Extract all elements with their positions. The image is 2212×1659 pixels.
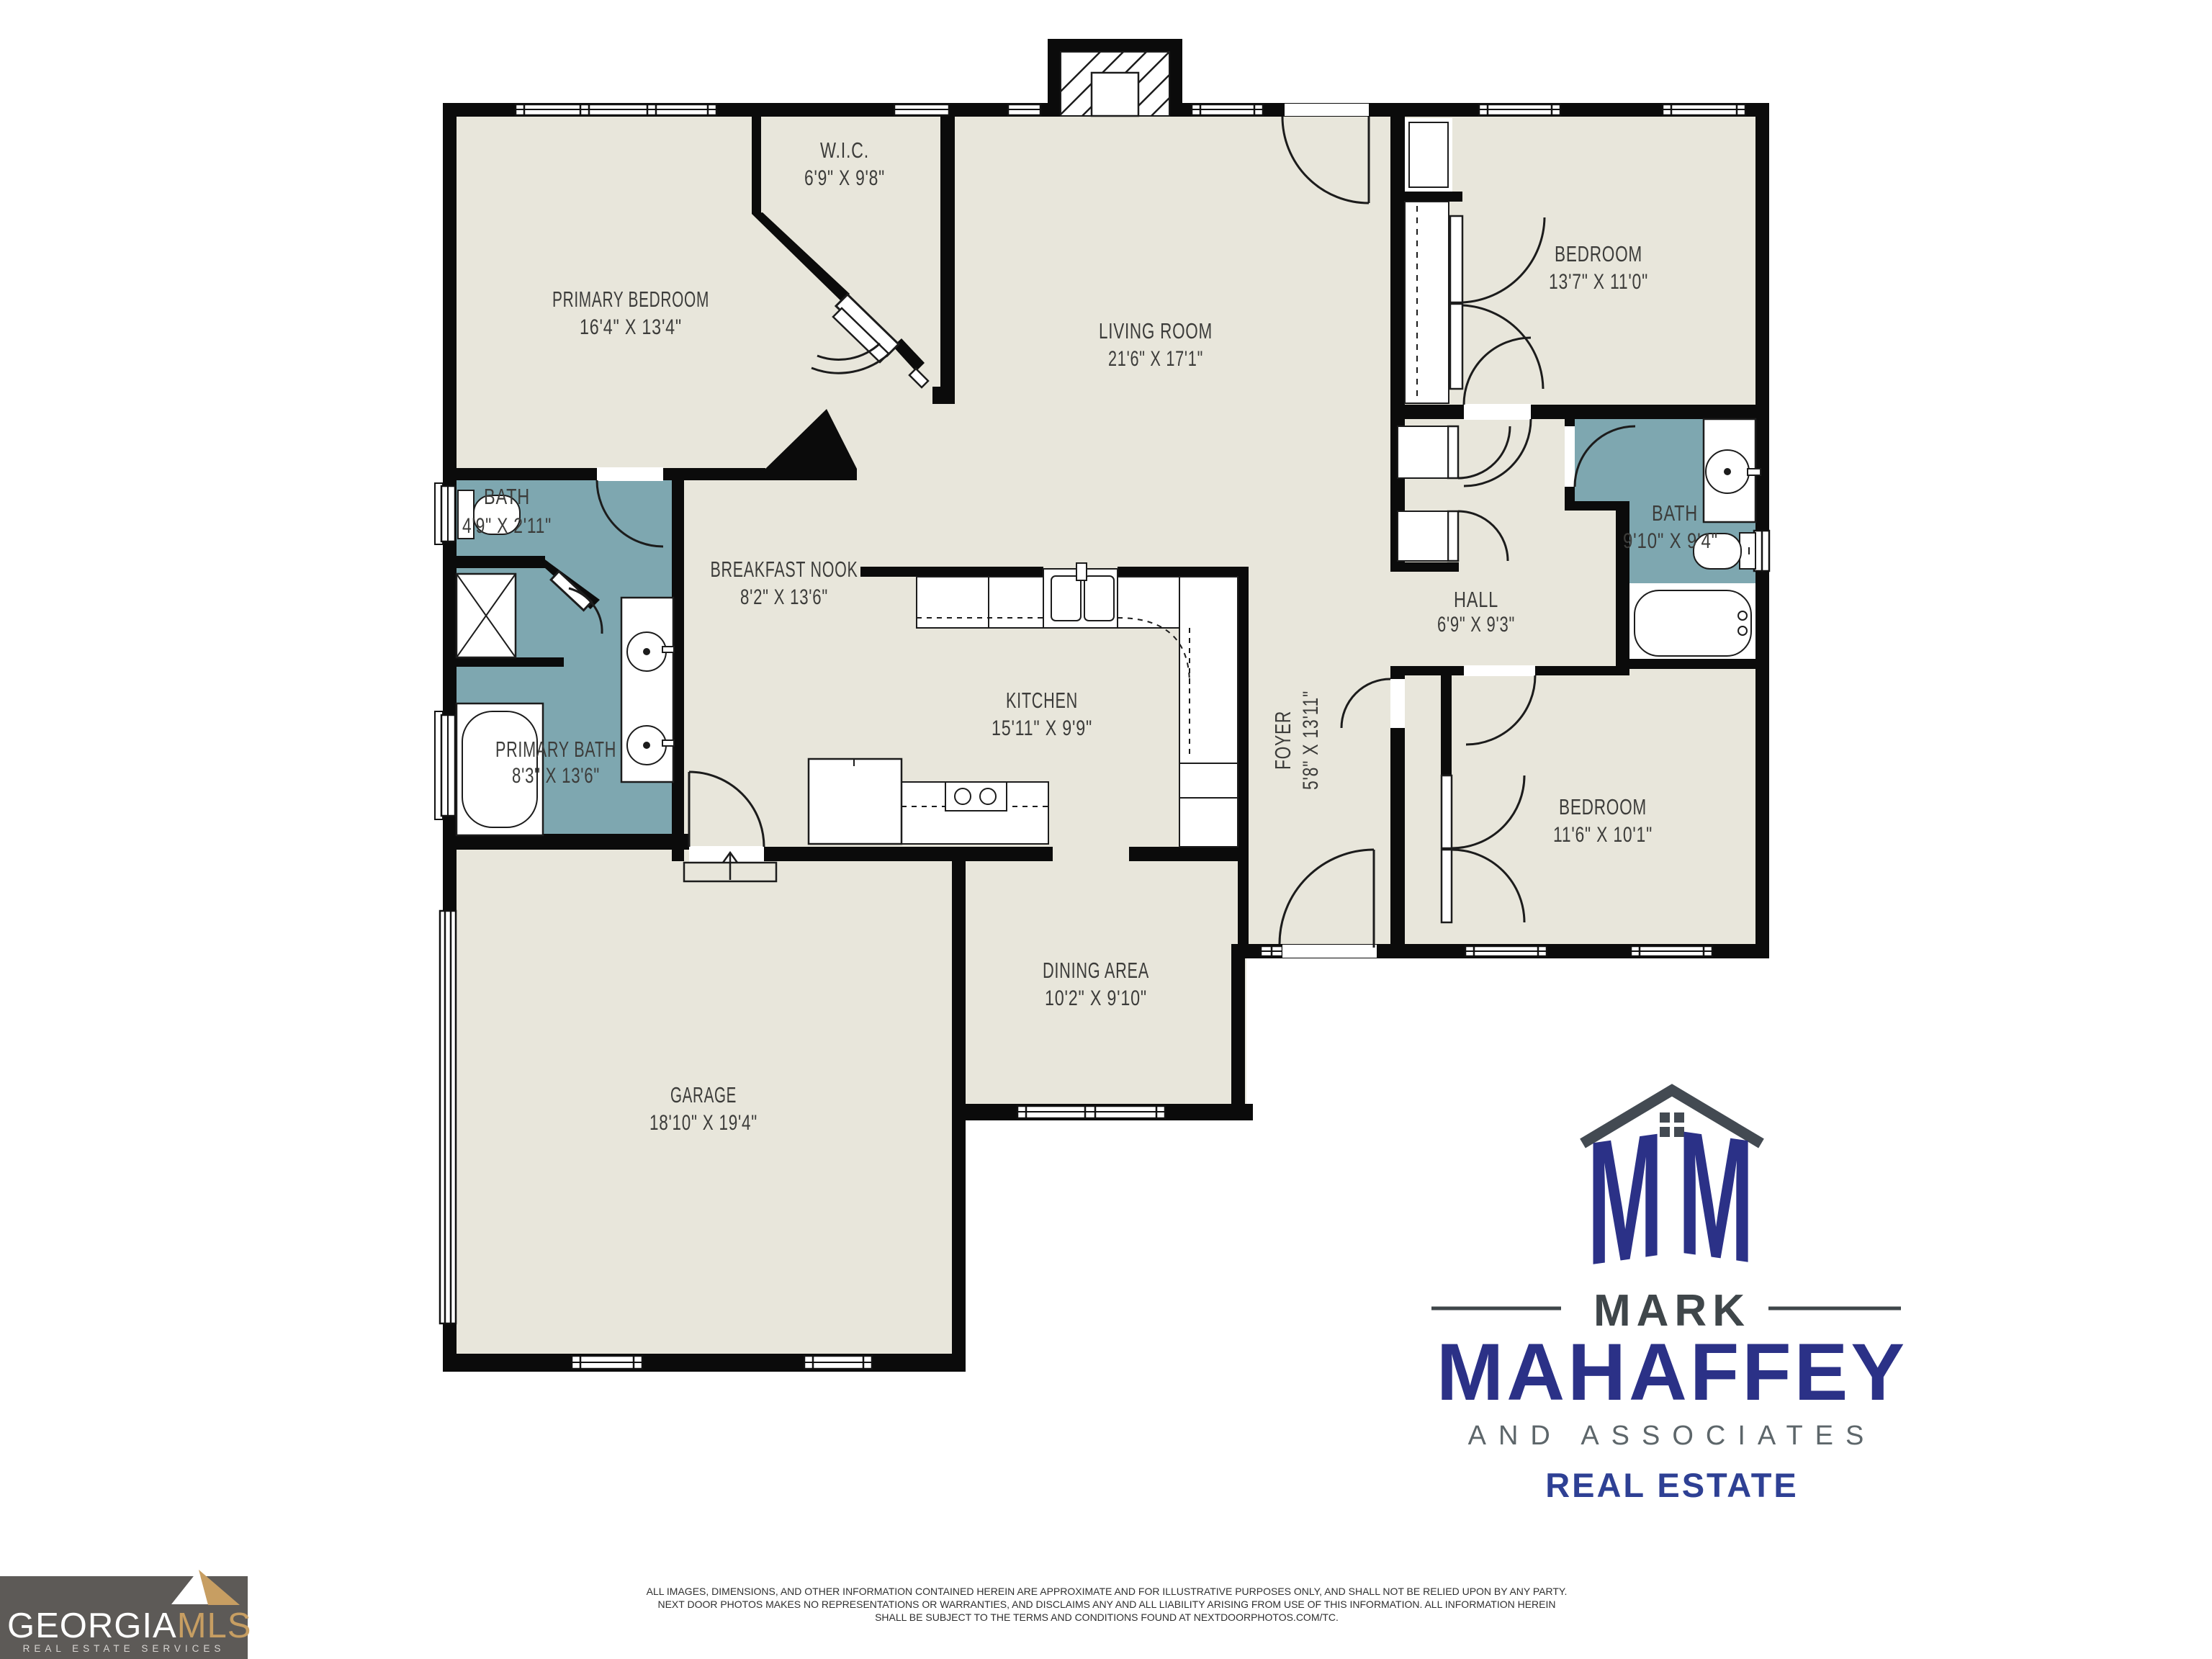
svg-text:6'9" X 9'8": 6'9" X 9'8" xyxy=(804,166,885,190)
svg-text:BATH: BATH xyxy=(1652,500,1698,526)
svg-text:HALL: HALL xyxy=(1454,587,1498,612)
svg-text:AND ASSOCIATES: AND ASSOCIATES xyxy=(1468,1421,1876,1451)
svg-text:18'10" X 19'4": 18'10" X 19'4" xyxy=(649,1111,757,1135)
svg-text:ALL IMAGES, DIMENSIONS, AND OT: ALL IMAGES, DIMENSIONS, AND OTHER INFORM… xyxy=(647,1586,1568,1597)
svg-text:REAL ESTATE: REAL ESTATE xyxy=(1545,1466,1799,1504)
svg-text:KITCHEN: KITCHEN xyxy=(1006,688,1078,713)
svg-text:MAHAFFEY: MAHAFFEY xyxy=(1437,1327,1907,1417)
svg-text:GARAGE: GARAGE xyxy=(670,1082,737,1107)
svg-text:10'2" X 9'10": 10'2" X 9'10" xyxy=(1045,986,1147,1010)
svg-text:13'7" X 11'0": 13'7" X 11'0" xyxy=(1549,270,1648,294)
svg-text:SHALL BE SUBJECT TO THE TERMS: SHALL BE SUBJECT TO THE TERMS AND CONDIT… xyxy=(875,1611,1339,1623)
svg-text:PRIMARY BEDROOM: PRIMARY BEDROOM xyxy=(552,287,709,312)
svg-text:BEDROOM: BEDROOM xyxy=(1559,794,1647,819)
svg-text:BEDROOM: BEDROOM xyxy=(1555,241,1642,266)
svg-text:W.I.C.: W.I.C. xyxy=(820,138,869,163)
svg-text:NEXT DOOR PHOTOS MAKES NO REPR: NEXT DOOR PHOTOS MAKES NO REPRESENTATION… xyxy=(657,1599,1555,1610)
svg-text:8'2" X 13'6": 8'2" X 13'6" xyxy=(740,585,828,609)
svg-text:FOYER: FOYER xyxy=(1270,711,1295,770)
svg-text:6'9" X 9'3": 6'9" X 9'3" xyxy=(1437,613,1515,637)
svg-text:21'6" X 17'1": 21'6" X 17'1" xyxy=(1108,347,1203,371)
svg-text:16'4" X 13'4": 16'4" X 13'4" xyxy=(580,315,682,339)
svg-text:4'9" X 2'11": 4'9" X 2'11" xyxy=(462,514,552,538)
svg-text:BREAKFAST NOOK: BREAKFAST NOOK xyxy=(711,557,858,582)
svg-text:9'10" X 9'4": 9'10" X 9'4" xyxy=(1623,529,1718,553)
svg-text:8'3" X 13'6": 8'3" X 13'6" xyxy=(512,764,600,788)
svg-text:DINING AREA: DINING AREA xyxy=(1043,958,1149,983)
svg-text:PRIMARY BATH: PRIMARY BATH xyxy=(495,737,616,762)
svg-text:M: M xyxy=(1587,1096,1663,1303)
svg-text:BATH: BATH xyxy=(484,484,530,509)
svg-text:M: M xyxy=(1678,1094,1754,1301)
svg-text:15'11" X 9'9": 15'11" X 9'9" xyxy=(992,716,1092,740)
svg-text:REAL ESTATE SERVICES: REAL ESTATE SERVICES xyxy=(23,1643,225,1654)
svg-text:LIVING ROOM: LIVING ROOM xyxy=(1099,318,1213,343)
svg-text:GEORGIAMLS: GEORGIAMLS xyxy=(7,1606,251,1645)
svg-text:11'6" X 10'1": 11'6" X 10'1" xyxy=(1553,823,1653,847)
svg-text:5'8" X 13'11": 5'8" X 13'11" xyxy=(1299,691,1323,790)
